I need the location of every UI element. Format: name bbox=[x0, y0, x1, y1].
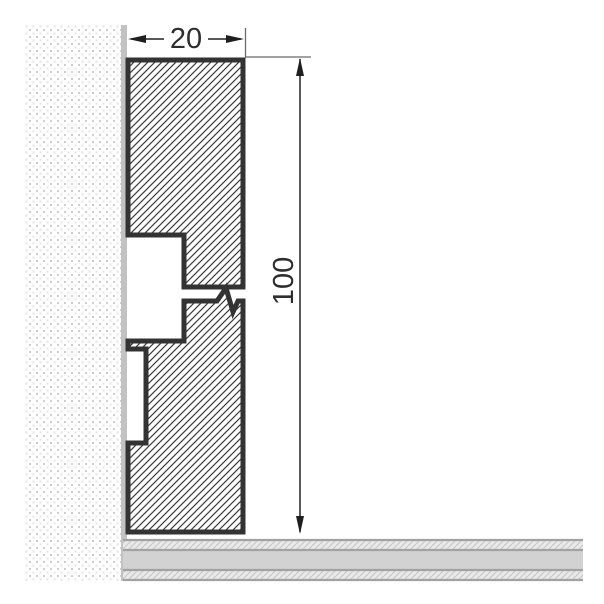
floor bbox=[123, 539, 583, 581]
technical-drawing: 20 100 bbox=[0, 0, 604, 604]
arrowhead-down-icon bbox=[296, 516, 304, 534]
wall-stipple-area bbox=[25, 25, 126, 581]
height-dimension: 100 bbox=[246, 57, 311, 534]
height-dimension-label: 100 bbox=[268, 257, 300, 305]
width-dimension: 20 bbox=[128, 23, 246, 58]
skirting-profile-lower-piece bbox=[128, 288, 243, 532]
skirting-profile-upper-piece bbox=[128, 60, 243, 287]
arrowhead-right-icon bbox=[226, 35, 244, 43]
floor-solid-layer bbox=[123, 551, 583, 569]
arrowhead-up-icon bbox=[296, 58, 304, 76]
arrowhead-left-icon bbox=[128, 35, 146, 43]
drawing-canvas: 20 100 bbox=[0, 0, 604, 604]
width-dimension-label: 20 bbox=[170, 23, 202, 55]
wall bbox=[25, 25, 127, 581]
